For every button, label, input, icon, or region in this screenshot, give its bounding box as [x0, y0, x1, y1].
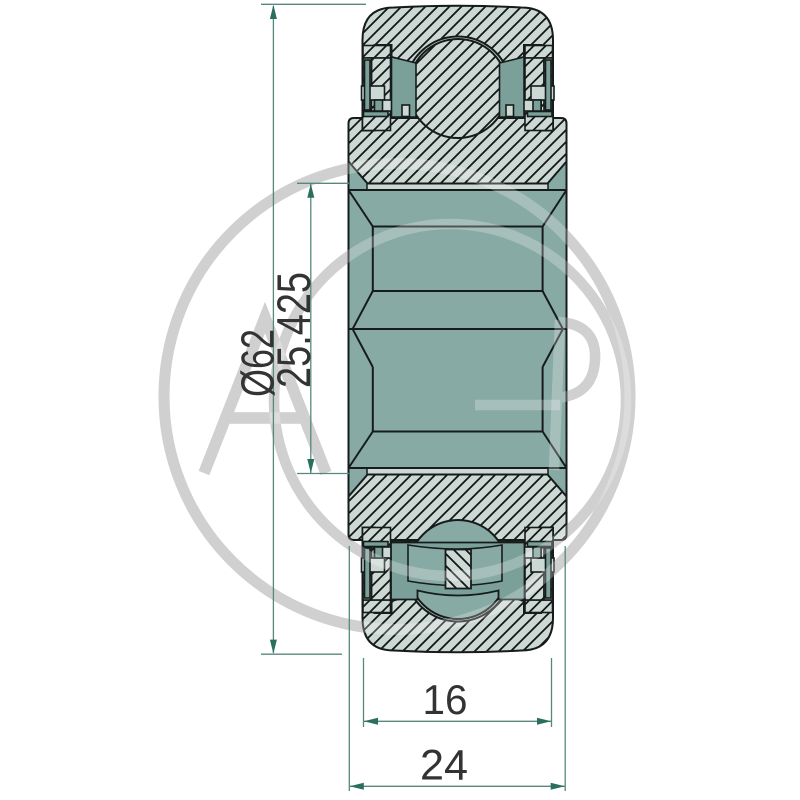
svg-text:16: 16: [423, 676, 468, 723]
svg-text:25.425: 25.425: [267, 272, 320, 388]
svg-text:24: 24: [420, 742, 468, 790]
